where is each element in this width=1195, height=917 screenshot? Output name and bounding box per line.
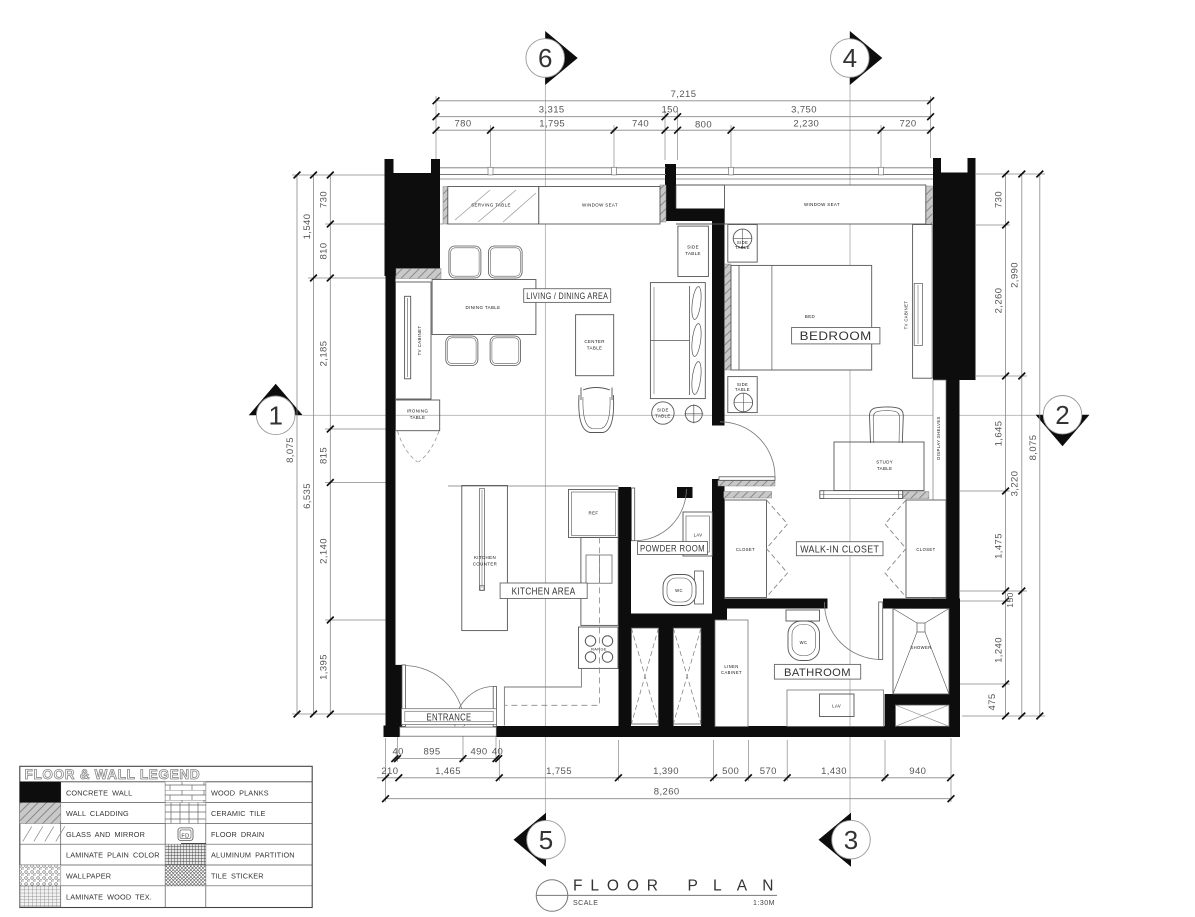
svg-text:WALK-IN CLOSET: WALK-IN CLOSET [800,544,879,556]
svg-text:730: 730 [319,191,330,208]
svg-text:1:30M: 1:30M [753,900,775,907]
svg-text:LAV: LAV [832,704,841,709]
svg-text:1,430: 1,430 [821,766,847,777]
svg-text:CONCRETE WALL: CONCRETE WALL [66,788,132,797]
svg-text:TABLE: TABLE [410,415,426,420]
svg-text:720: 720 [899,118,916,129]
svg-text:475: 475 [987,693,998,710]
svg-text:CABINET: CABINET [721,670,742,675]
svg-text:WINDOW SEAT: WINDOW SEAT [804,202,840,207]
svg-text:LAV: LAV [694,533,703,538]
svg-text:GLASS AND MIRROR: GLASS AND MIRROR [66,830,145,839]
svg-text:210: 210 [381,766,398,777]
svg-text:1,645: 1,645 [994,421,1005,447]
svg-text:3,315: 3,315 [539,105,565,116]
svg-text:STUDY: STUDY [876,460,893,465]
svg-text:8,075: 8,075 [1028,435,1039,461]
svg-text:TABLE: TABLE [685,251,701,256]
svg-text:2,185: 2,185 [319,341,330,367]
svg-text:8,075: 8,075 [285,437,296,463]
svg-text:150: 150 [1005,592,1015,607]
svg-text:1: 1 [268,401,282,431]
svg-text:FD: FD [181,834,189,840]
svg-text:500: 500 [722,766,739,777]
svg-text:TABLE: TABLE [655,414,671,419]
svg-text:815: 815 [319,447,330,464]
svg-text:TV CABINET: TV CABINET [904,301,909,330]
svg-text:LINEN: LINEN [724,664,738,669]
svg-text:FLOOR & WALL LEGEND: FLOOR & WALL LEGEND [25,767,201,782]
svg-text:730: 730 [994,191,1005,208]
svg-text:CLOSET: CLOSET [916,547,935,552]
svg-text:740: 740 [632,118,649,129]
svg-text:WC: WC [675,588,683,593]
svg-text:1,390: 1,390 [653,766,679,777]
svg-text:ENTRANCE: ENTRANCE [427,713,472,724]
svg-text:810: 810 [319,242,330,259]
svg-text:780: 780 [454,118,471,129]
svg-text:TV CABINET: TV CABINET [417,326,422,356]
svg-text:40: 40 [393,747,404,758]
svg-text:2,990: 2,990 [1010,262,1021,288]
svg-text:2,260: 2,260 [994,288,1005,314]
svg-text:WALLPAPER: WALLPAPER [66,872,111,881]
svg-text:8,260: 8,260 [654,787,680,798]
svg-text:1,540: 1,540 [302,214,313,240]
svg-text:1,395: 1,395 [319,654,330,680]
svg-text:SIDE: SIDE [657,408,669,413]
svg-text:895: 895 [423,747,440,758]
svg-text:SHOWER: SHOWER [910,645,931,650]
svg-text:DINING TABLE: DINING TABLE [466,305,501,310]
svg-text:1,465: 1,465 [435,766,461,777]
svg-text:3: 3 [844,825,858,855]
svg-text:FLOOR DRAIN: FLOOR DRAIN [211,830,264,839]
svg-text:TABLE: TABLE [735,245,750,250]
svg-text:570: 570 [760,766,777,777]
svg-text:TABLE: TABLE [735,387,750,392]
svg-text:6: 6 [538,43,552,73]
svg-text:BED: BED [805,314,815,319]
svg-text:TILE STICKER: TILE STICKER [211,872,264,881]
svg-text:CERAMIC TILE: CERAMIC TILE [211,809,266,818]
svg-text:3,750: 3,750 [791,105,817,116]
svg-text:3,220: 3,220 [1010,471,1021,497]
svg-text:SIDE: SIDE [687,245,699,250]
svg-text:RANGE: RANGE [591,646,607,651]
svg-text:KITCHEN: KITCHEN [474,555,496,560]
svg-text:TABLE: TABLE [877,466,893,471]
svg-text:1,475: 1,475 [994,533,1005,559]
svg-text:940: 940 [909,766,926,777]
svg-text:IRONING: IRONING [407,409,429,414]
svg-text:REF: REF [589,511,599,516]
svg-text:CLOSET: CLOSET [736,547,755,552]
svg-text:5: 5 [539,825,553,855]
svg-text:LAMINATE PLAIN COLOR: LAMINATE PLAIN COLOR [66,851,160,860]
svg-text:BATHROOM: BATHROOM [784,667,851,679]
svg-text:6,535: 6,535 [302,483,313,509]
svg-text:800: 800 [695,120,712,131]
svg-text:CENTER: CENTER [584,339,604,344]
svg-text:2,230: 2,230 [793,118,819,129]
svg-text:WC: WC [800,640,808,645]
svg-text:WOOD PLANKS: WOOD PLANKS [211,788,269,797]
svg-text:7,215: 7,215 [671,89,697,100]
svg-text:TABLE: TABLE [587,346,603,351]
svg-text:COUNTER: COUNTER [473,562,498,567]
svg-text:POWDER ROOM: POWDER ROOM [640,544,705,554]
svg-text:490: 490 [470,747,487,758]
svg-text:2: 2 [1055,400,1069,430]
svg-text:LAMINATE WOOD TEX.: LAMINATE WOOD TEX. [66,892,152,901]
svg-text:KITCHEN AREA: KITCHEN AREA [512,587,576,598]
svg-text:WALL CLADDING: WALL CLADDING [66,809,129,818]
svg-text:LIVING / DINING AREA: LIVING / DINING AREA [526,291,608,301]
svg-text:BEDROOM: BEDROOM [800,329,872,343]
svg-text:SCALE: SCALE [573,900,598,907]
svg-text:40: 40 [492,747,503,758]
svg-text:4: 4 [843,43,857,73]
svg-text:2,140: 2,140 [319,538,330,564]
svg-text:WINDOW SEAT: WINDOW SEAT [582,203,618,208]
svg-text:1,795: 1,795 [539,118,565,129]
svg-text:SERVING TABLE: SERVING TABLE [471,203,511,208]
svg-text:1,240: 1,240 [994,637,1005,663]
svg-text:150: 150 [661,105,678,116]
svg-text:ALUMINUM PARTITION: ALUMINUM PARTITION [211,851,295,860]
svg-text:DISPLAY SHELVES: DISPLAY SHELVES [936,416,941,459]
svg-text:1,755: 1,755 [546,766,572,777]
